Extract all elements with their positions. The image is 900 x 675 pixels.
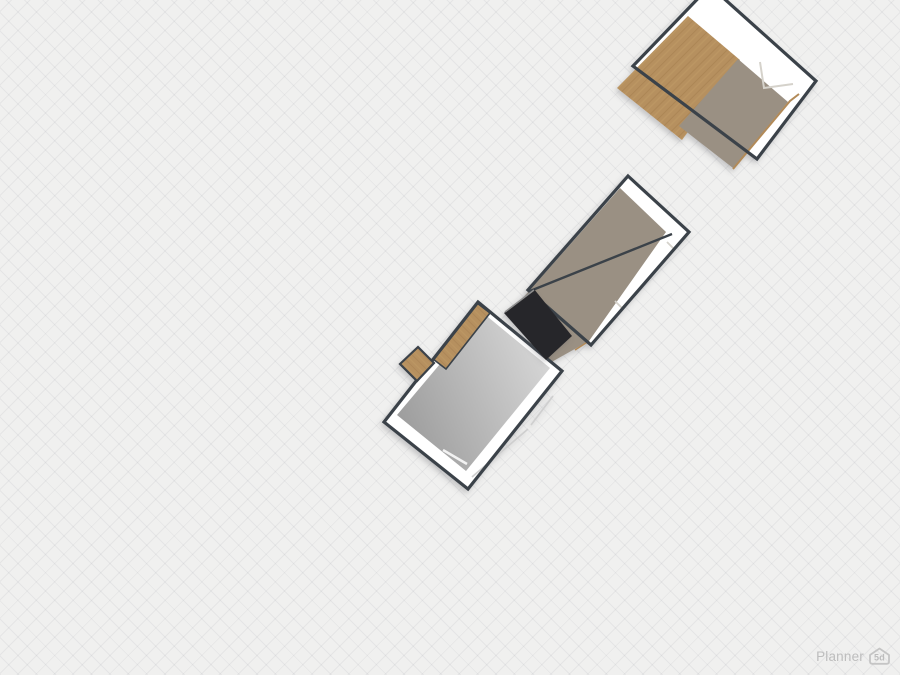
scene-svg (0, 0, 900, 675)
planner5d-watermark: Planner 5d (816, 647, 891, 666)
watermark-badge-text: 5d (874, 653, 885, 663)
room-top-right[interactable] (617, 0, 816, 169)
floorplan-canvas[interactable]: Planner 5d (0, 0, 900, 675)
scene-objects (384, 0, 816, 489)
watermark-text: Planner (816, 649, 864, 664)
planner5d-logo-badge: 5d (868, 647, 891, 666)
